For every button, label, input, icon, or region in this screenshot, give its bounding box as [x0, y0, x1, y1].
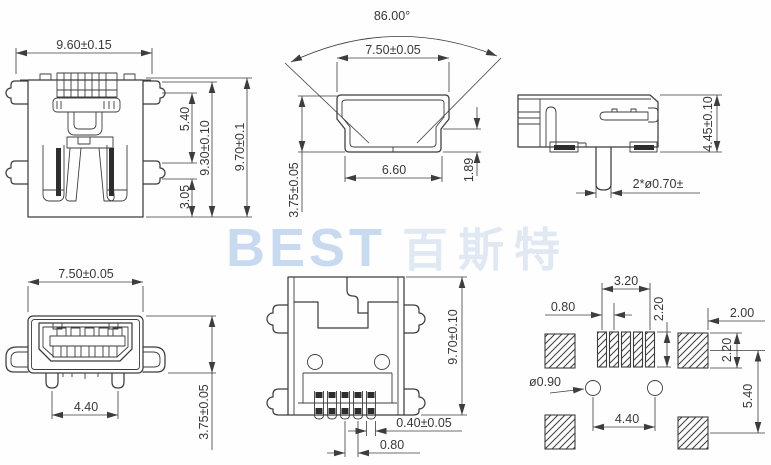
- dim-bottom-length: 9.70±0.10: [446, 309, 460, 365]
- dim-rear-upper-height: 5.40: [178, 107, 192, 131]
- dim-pcb-pad-length: 2.20: [652, 297, 666, 321]
- technical-drawing-canvas: BEST百斯特: [0, 0, 771, 465]
- rear-view: 9.60±0.15 5.40 3.05 9.30±0.10 9.70±0.1: [6, 38, 252, 217]
- dim-front-height: 3.75±0.05: [197, 384, 211, 440]
- dim-front-width: 7.50±0.05: [58, 267, 114, 281]
- mating-face-view: 86.00° 7.50±0.05 6.60 1.89 3.75±0.05: [285, 9, 501, 218]
- dim-rear-width: 9.60±0.15: [56, 38, 112, 52]
- front-view-outline: [6, 316, 165, 388]
- dim-pcb-pad-span: 3.20: [614, 274, 638, 288]
- bottom-view-outline: [267, 277, 425, 419]
- mating-face-outline: [337, 95, 449, 152]
- dim-bottom-pin-pitch: 0.80: [380, 438, 404, 452]
- dim-side-height: 4.45±0.10: [701, 96, 715, 152]
- rear-view-outline: [6, 73, 165, 217]
- drawing-sheet: 9.60±0.15 5.40 3.05 9.30±0.10 9.70±0.1: [0, 0, 771, 465]
- front-view: 7.50±0.05 4.40 3.75±0.05: [6, 267, 216, 450]
- dim-mating-lip-height: 1.89: [462, 158, 476, 182]
- dim-pcb-pad-pitch: 0.80: [551, 300, 575, 314]
- dim-mating-outer-width: 7.50±0.05: [365, 43, 421, 57]
- bottom-view-dimensions: 9.70±0.10 0.40±0.05 0.80: [327, 277, 467, 457]
- dim-mating-height: 3.75±0.05: [287, 162, 301, 218]
- dim-mating-angle: 86.00°: [374, 9, 410, 23]
- dim-mating-inner-width: 6.60: [382, 163, 406, 177]
- bottom-view: 9.70±0.10 0.40±0.05 0.80: [267, 277, 467, 457]
- side-view-outline: [518, 95, 658, 190]
- dim-rear-total-height: 9.70±0.1: [233, 123, 247, 172]
- mating-face-dimensions: 86.00° 7.50±0.05 6.60 1.89 3.75±0.05: [285, 9, 501, 218]
- side-view: 4.45±0.10 2*ø0.70±: [518, 95, 722, 198]
- dim-pcb-hole-span: 4.40: [615, 412, 639, 426]
- dim-pcb-hole-diameter: ø0.90: [529, 375, 561, 389]
- dim-bottom-pin-width: 0.40±0.05: [396, 416, 452, 430]
- dim-pcb-row-pitch: 5.40: [741, 384, 755, 408]
- dim-front-peg-span: 4.40: [74, 400, 98, 414]
- dim-pcb-side-pad-length: 2.20: [720, 338, 734, 362]
- pcb-footprint: 3.20 0.80 2.20 2.00 2.20: [529, 274, 765, 449]
- dim-rear-lower-height: 3.05: [178, 185, 192, 209]
- dim-pcb-side-pad-width: 2.00: [730, 306, 754, 320]
- dim-rear-shell-height: 9.30±0.10: [198, 120, 212, 176]
- dim-side-pegs: 2*ø0.70±: [633, 177, 684, 191]
